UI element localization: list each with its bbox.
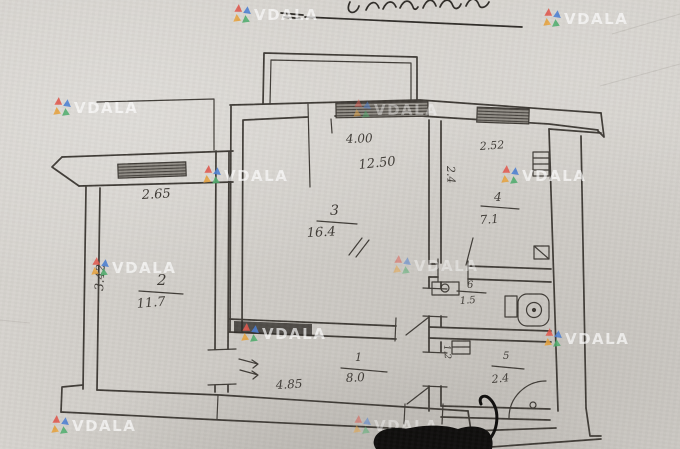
vdala-watermark-text: VDALA <box>374 101 438 119</box>
vdala-watermark: VDALA <box>53 97 138 117</box>
vdala-watermark: VDALA <box>544 328 629 348</box>
balcony-door-leaf <box>308 104 310 187</box>
dim-room3-length: 12.50 <box>358 154 397 173</box>
vdala-watermark: VDALA <box>393 255 478 275</box>
vdala-watermark-text: VDALA <box>254 6 318 24</box>
vent-box-icon <box>534 246 549 259</box>
dim-corridor-length: 4.85 <box>274 377 302 392</box>
toilet-fixture <box>505 294 549 326</box>
vdala-logo-icon <box>353 415 371 434</box>
vdala-watermark: VDALA <box>233 4 318 24</box>
room-4-number: 4 <box>493 190 502 204</box>
dim-room2-width: 2.65 <box>140 186 171 203</box>
vdala-logo-icon <box>233 4 251 23</box>
windows <box>118 101 529 178</box>
vdala-watermark: VDALA <box>501 165 586 185</box>
room-5-number: 5 <box>503 351 509 362</box>
vdala-watermark-text: VDALA <box>224 167 288 185</box>
vdala-watermark-text: VDALA <box>72 417 136 435</box>
vdala-watermark: VDALA <box>543 8 628 28</box>
vdala-logo-icon <box>543 8 561 27</box>
title-underline <box>305 17 522 27</box>
vdala-logo-icon <box>203 165 221 184</box>
vdala-logo-icon <box>51 415 69 434</box>
vdala-watermark-text: VDALA <box>564 10 628 28</box>
room-6-area: 1.5 <box>459 295 476 307</box>
vdala-watermark: VDALA <box>51 415 136 435</box>
door-arrows <box>239 359 258 379</box>
vdala-watermark-text: VDALA <box>414 257 478 275</box>
dim-bath-width: 1.2 <box>441 345 452 360</box>
room-4-area: 7.1 <box>479 212 499 227</box>
vdala-watermark-text: VDALA <box>522 167 586 185</box>
wc-door-leaf <box>406 317 429 335</box>
vdala-watermark-text: VDALA <box>262 325 326 343</box>
bath-sink-fixture <box>452 341 470 354</box>
balcony <box>263 53 417 104</box>
vdala-logo-icon <box>501 165 519 184</box>
vdala-watermark-text: VDALA <box>565 330 629 348</box>
room-2-area: 11.7 <box>136 294 167 312</box>
floorplan-scan: 2.65 3.42 2 11.7 4.00 12.50 3 16.4 2.52 … <box>0 0 680 449</box>
watermarks: VDALA VDALA VDALA VDALA VDALA VDALA VDAL… <box>51 4 629 435</box>
window-room2 <box>118 162 186 178</box>
room-1-area: 8.0 <box>345 370 365 385</box>
vdala-watermark-text: VDALA <box>74 99 138 117</box>
vdala-watermark-text: VDALA <box>112 259 176 277</box>
room-6-number: 6 <box>467 280 474 291</box>
room-1-number: 1 <box>355 351 362 364</box>
window-room4 <box>477 107 529 124</box>
dim-room4-depth: 2.4 <box>444 165 458 184</box>
bath-door-leaf <box>407 387 429 404</box>
corner-bath-fixture <box>509 381 546 418</box>
room-3-number: 3 <box>330 203 339 219</box>
vdala-logo-icon <box>393 255 411 274</box>
dim-room4-width: 2.52 <box>478 138 504 153</box>
room-3-area: 16.4 <box>306 224 336 240</box>
dim-room3-width: 4.00 <box>345 131 374 146</box>
room-5-area: 2.4 <box>490 371 510 386</box>
vdala-logo-icon <box>53 97 71 116</box>
